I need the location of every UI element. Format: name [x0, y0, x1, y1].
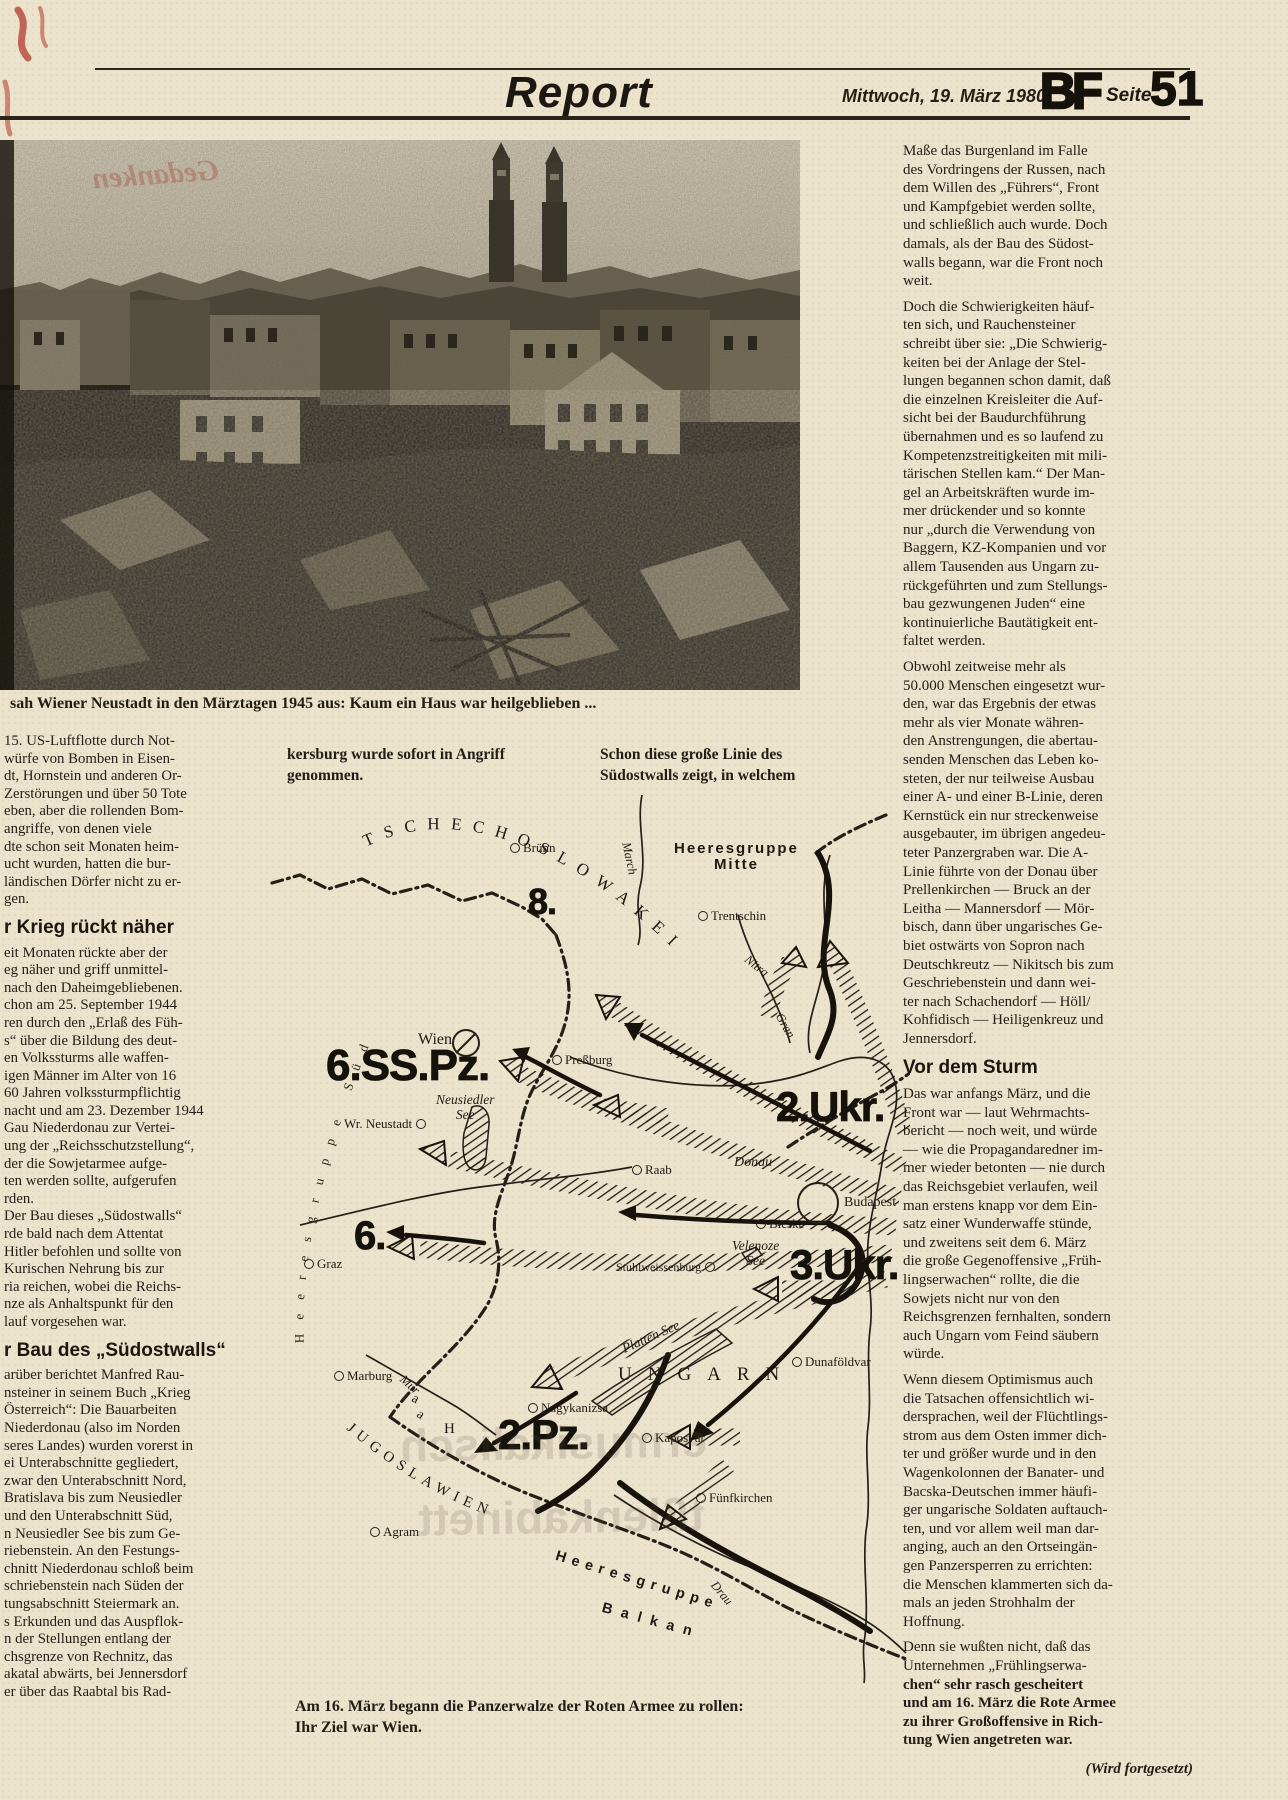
right-paragraph-6: Denn sie wußten nicht, daß das Unternehm…	[903, 1638, 1193, 1675]
city-graz: Graz	[304, 1257, 342, 1271]
left-column: 15. US-Luftflotte durch Not- würfe von B…	[4, 733, 262, 1707]
ruins-photo-art	[0, 140, 800, 690]
right-paragraph-5: Wenn diesem Optimismus auch die Tatsache…	[903, 1371, 1193, 1631]
right-paragraph-2: Doch die Schwierigkeiten häuf- ten sich,…	[903, 298, 1193, 651]
right-column: Maße das Burgenland im Falle des Vordrin…	[903, 142, 1193, 1778]
hq-balkan-label-1: Heeresgruppe	[553, 1549, 720, 1614]
river-donau-label: Donau	[734, 1155, 772, 1170]
city-fuenfkirchen: Fünfkirchen	[696, 1491, 773, 1505]
army-2ukr-label: 2.Ukr.	[776, 1087, 884, 1127]
river-nitra-label: Nitra	[742, 953, 771, 980]
city-circle-icon	[756, 1219, 766, 1229]
hq-balkan-label-2: Balkan	[600, 1601, 702, 1642]
city-circle-icon	[370, 1527, 380, 1537]
city-bruenn: Brünn	[510, 841, 556, 855]
city-bicske: Bicske	[756, 1217, 804, 1231]
left-paragraph-3: arüber berichtet Manfred Rau- nsteiner i…	[4, 1367, 262, 1701]
continuation-note: (Wird fortgesetzt)	[903, 1760, 1193, 1779]
header-rule-bottom	[0, 116, 1190, 120]
river-gran-label: Gran	[772, 1011, 797, 1041]
city-budapest: Budapest	[844, 1195, 896, 1210]
intro-left: kersburg wurde sofort in Angriff genomme…	[287, 744, 567, 786]
date-line: Mittwoch, 19. März 1980	[842, 86, 1046, 107]
front-line-map: TSCHECHOSLOWAKEIJUGOSLAWIENHeeresgruppe …	[270, 795, 910, 1685]
city-wr-neustadt: Wr. Neustadt	[344, 1117, 426, 1131]
hq-mitte-label: Heeresgruppe Mitte	[674, 841, 799, 873]
city-circle-icon	[334, 1371, 344, 1381]
city-circle-icon	[705, 1262, 715, 1272]
left-paragraph-1: 15. US-Luftflotte durch Not- würfe von B…	[4, 733, 262, 909]
right-paragraph-6-bold: chen“ sehr rasch gescheitert und am 16. …	[903, 1676, 1193, 1750]
city-circle-icon	[416, 1119, 426, 1129]
photo-caption: sah Wiener Neustadt in den Märztagen 194…	[10, 695, 810, 713]
right-heading-sturm: Vor dem Sturm	[903, 1059, 1193, 1078]
city-raab: Raab	[632, 1163, 672, 1177]
bf-logo: BF	[1040, 62, 1099, 120]
army-3ukr-label: 3.Ukr.	[790, 1245, 898, 1285]
red-pen-marks	[0, 0, 80, 150]
map-caption: Am 16. März begann die Panzerwalze der R…	[295, 1696, 915, 1738]
lake-neusiedler-label: Neusiedler See	[436, 1093, 495, 1122]
city-marburg: Marburg	[334, 1369, 392, 1383]
city-pressburg: Preßburg	[552, 1053, 612, 1067]
newspaper-page: Report Mittwoch, 19. März 1980 BF Seite …	[0, 0, 1288, 1800]
left-heading-krieg: r Krieg rückt näher	[4, 919, 262, 937]
city-circle-icon	[698, 911, 708, 921]
city-dunafoeldvar: Dunaföldvar	[792, 1355, 871, 1369]
city-agram: Agram	[370, 1525, 419, 1539]
city-stuhlweissenburg: Stuhlweissenburg	[616, 1261, 715, 1274]
army-6sspz-label: 6.SS.Pz.	[326, 1045, 489, 1087]
lake-platten-label: Platten See	[620, 1318, 682, 1356]
city-circle-icon	[632, 1165, 642, 1175]
city-circle-icon	[304, 1259, 314, 1269]
seite-label: Seite	[1106, 85, 1151, 107]
country-ungarn-label: UNGARN	[618, 1365, 795, 1386]
left-heading-bau: r Bau des „Südostwalls“	[4, 1342, 262, 1360]
right-paragraph-3: Obwohl zeitweise mehr als 50.000 Mensche…	[903, 658, 1193, 1048]
ruins-photo	[0, 140, 800, 690]
lake-velenoze-label: Velenoze See	[732, 1239, 779, 1268]
intro-right: Schon diese große Linie des Südostwalls …	[600, 744, 850, 786]
bleedthrough-line-2: tßlenkabinett	[418, 1488, 705, 1547]
city-circle-icon	[552, 1055, 562, 1065]
right-paragraph-4: Das war anfangs März, und die Front war …	[903, 1085, 1193, 1364]
right-paragraph-1: Maße das Burgenland im Falle des Vordrin…	[903, 142, 1193, 291]
army-8-label: 8.	[528, 885, 556, 919]
city-trentschin: Trentschin	[698, 909, 766, 923]
river-march-label: March	[619, 841, 639, 876]
army-6-label: 6.	[354, 1217, 385, 1255]
left-paragraph-2: eit Monaten rückte aber der eg näher und…	[4, 945, 262, 1332]
bleedthrough-line-1: ermusikalisch	[400, 1413, 708, 1472]
map-labels: BrünnHeeresgruppe MitteMarchTrentschin8.…	[270, 795, 910, 1685]
city-circle-icon	[510, 843, 520, 853]
section-title: Report	[505, 68, 653, 118]
page-number: 51	[1150, 62, 1203, 117]
